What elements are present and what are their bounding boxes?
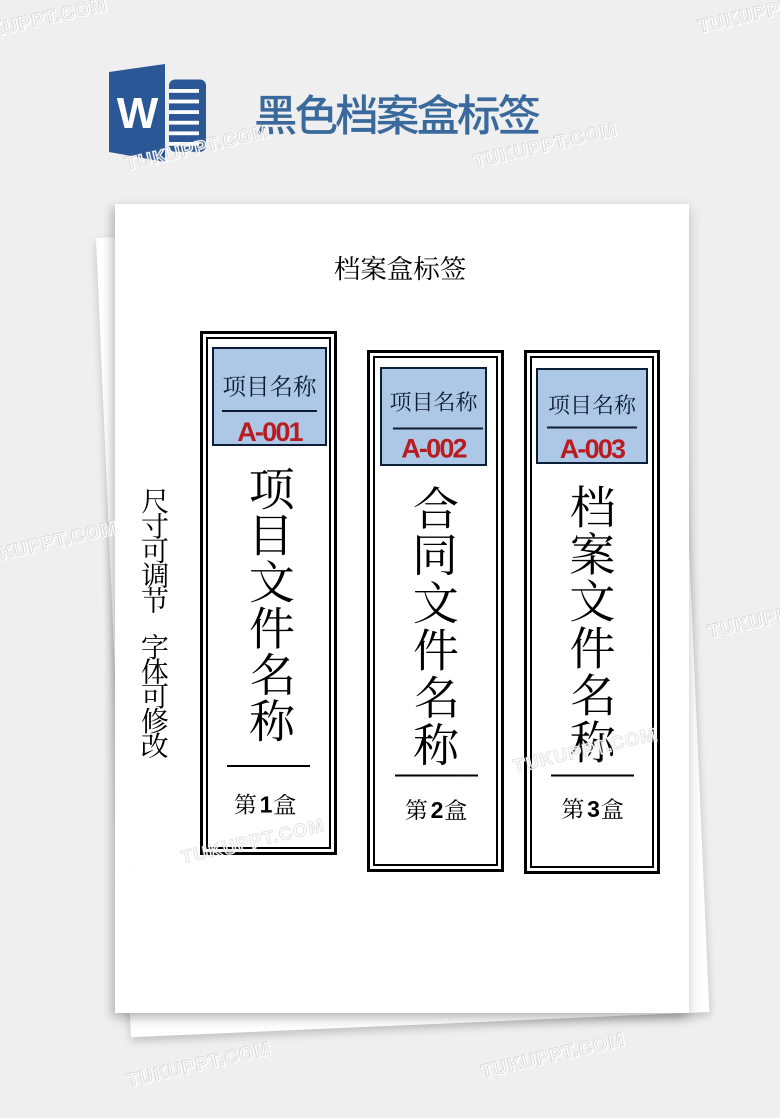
svg-text:2: 2	[431, 797, 444, 823]
svg-text:TUKUPPT.COM: TUKUPPT.COM	[0, 516, 119, 569]
svg-text:TUKUPPT.COM: TUKUPPT.COM	[706, 588, 780, 641]
svg-text:1: 1	[260, 791, 273, 817]
svg-text:TUKUPPT.COM: TUKUPPT.COM	[125, 1037, 273, 1090]
svg-text:TUKUPPT.COM: TUKUPPT.COM	[696, 0, 780, 37]
svg-text:TUKUPPT.COM: TUKUPPT.COM	[479, 1028, 627, 1081]
svg-text:W: W	[117, 89, 159, 138]
svg-text:3: 3	[587, 796, 600, 822]
svg-text:TUKUPPT.COM: TUKUPPT.COM	[0, 0, 109, 47]
